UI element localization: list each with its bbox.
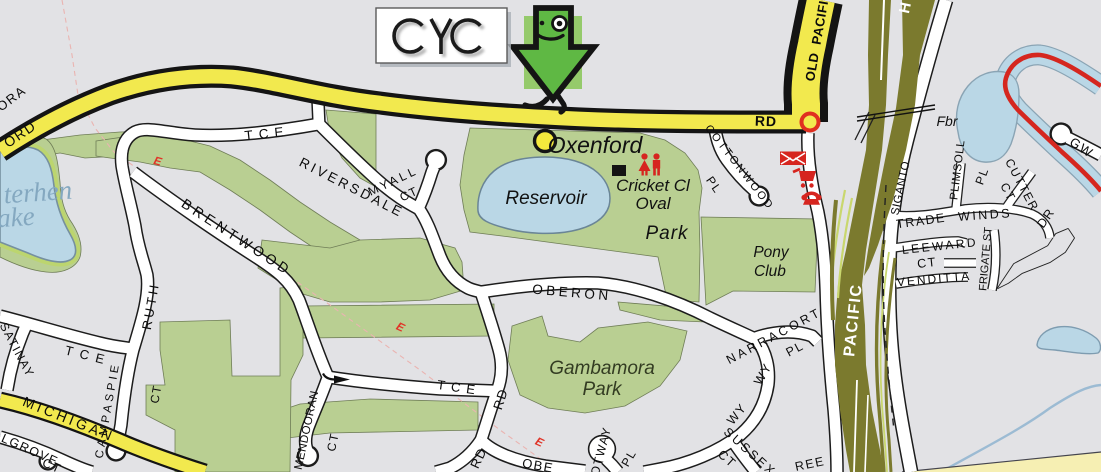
svg-text:Park: Park (645, 223, 689, 244)
svg-text:Pony: Pony (753, 244, 790, 261)
svg-text:Gambamora: Gambamora (549, 358, 655, 379)
svg-text:CT: CT (916, 255, 937, 271)
svg-text:Reservoir: Reservoir (505, 188, 587, 209)
svg-text:Oval: Oval (636, 194, 672, 213)
svg-text:Oxenford: Oxenford (548, 132, 644, 158)
svg-text:Park: Park (582, 379, 623, 400)
svg-text:ake: ake (0, 201, 36, 234)
svg-text:Fbr: Fbr (937, 113, 959, 129)
svg-text:RD: RD (755, 113, 778, 130)
svg-text:Club: Club (754, 263, 786, 280)
svg-text:Cricket Cl: Cricket Cl (616, 176, 691, 195)
